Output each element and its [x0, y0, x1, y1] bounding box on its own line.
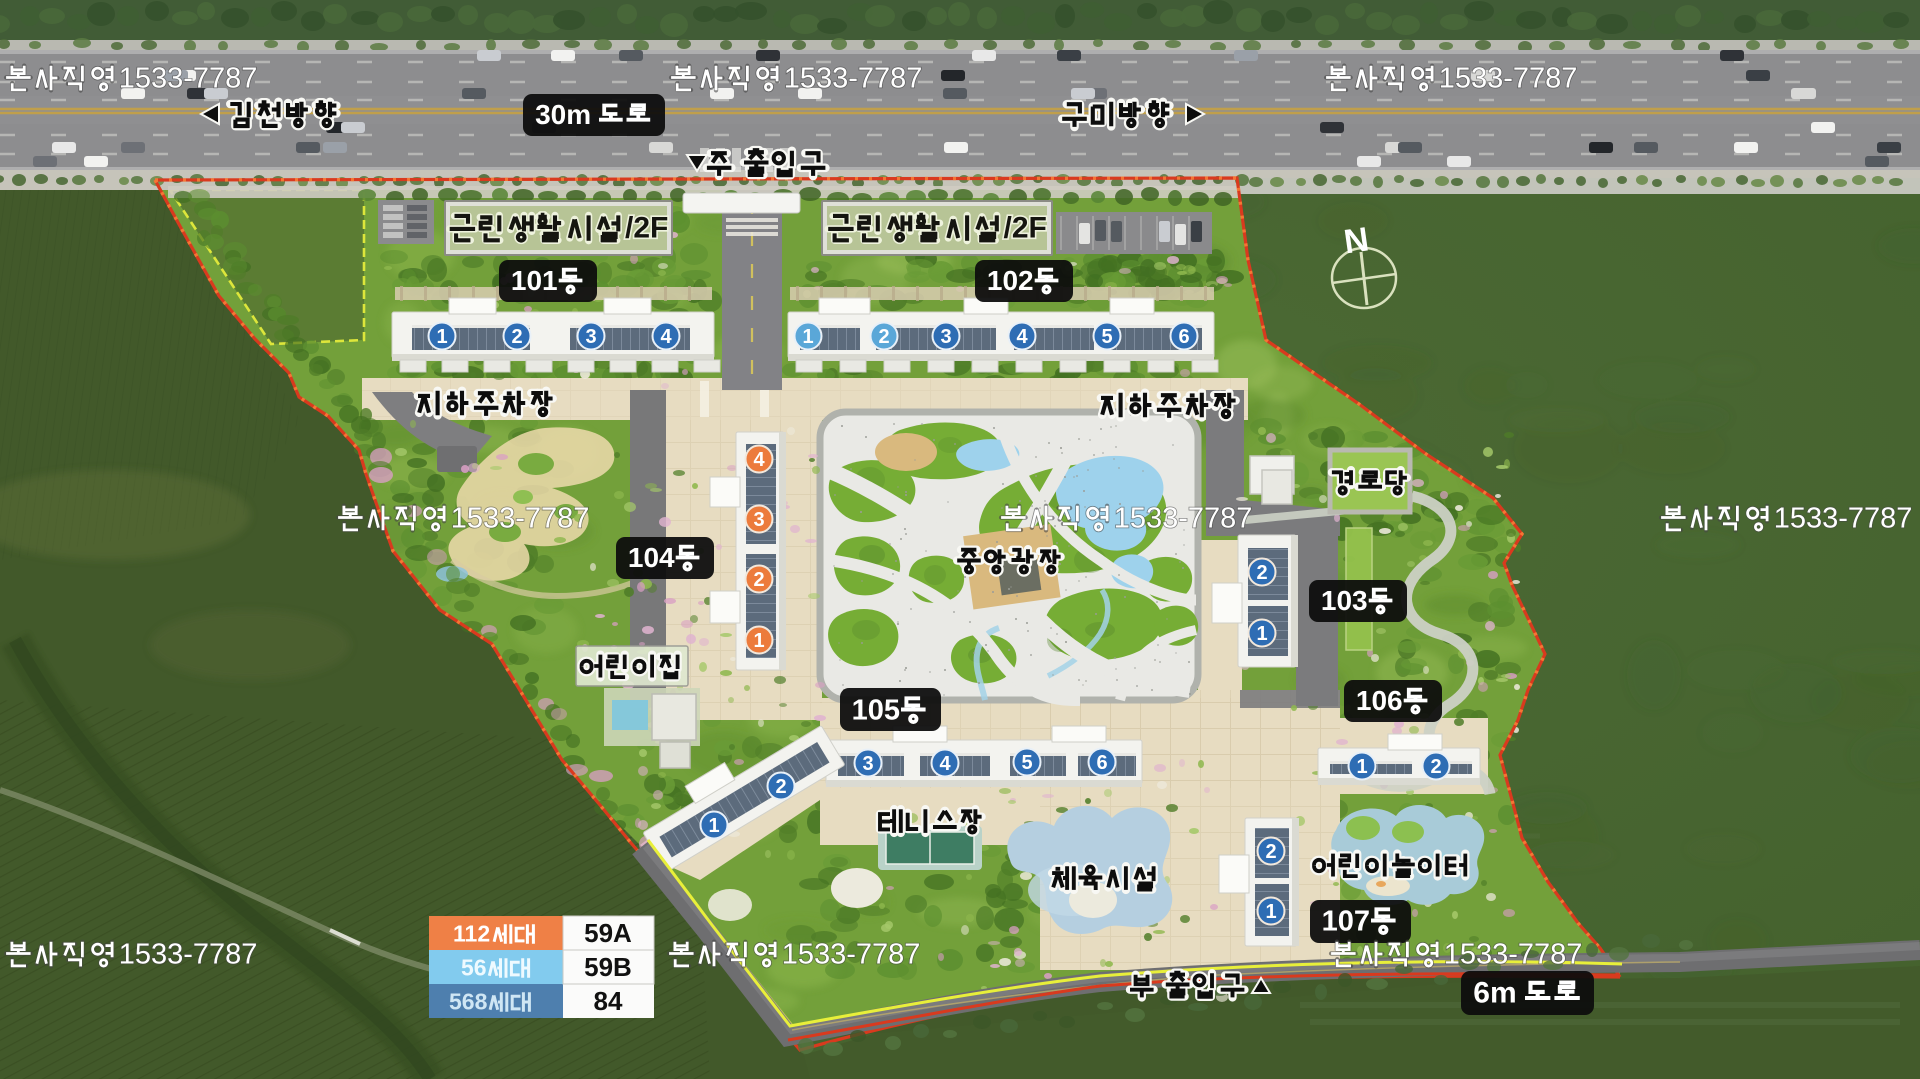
svg-text:5: 5	[1021, 752, 1032, 774]
svg-text:84: 84	[594, 986, 623, 1016]
svg-text:1: 1	[1356, 756, 1367, 778]
svg-text:2: 2	[878, 326, 889, 348]
svg-text:56: 56	[461, 954, 487, 980]
svg-text:105: 105	[852, 694, 900, 726]
svg-text:2: 2	[1430, 756, 1441, 778]
svg-text:1: 1	[436, 326, 447, 348]
svg-text:4: 4	[1016, 326, 1028, 348]
svg-text:568: 568	[449, 988, 488, 1014]
svg-text:1533-7787: 1533-7787	[782, 938, 921, 970]
svg-text:1: 1	[802, 326, 813, 348]
svg-text:106: 106	[1356, 685, 1403, 716]
svg-text:/2F: /2F	[1004, 212, 1047, 245]
svg-text:1533-7787: 1533-7787	[1439, 62, 1578, 94]
svg-text:3: 3	[585, 326, 596, 348]
svg-text:5: 5	[1101, 326, 1112, 348]
svg-text:3: 3	[753, 509, 764, 531]
svg-text:2: 2	[753, 569, 764, 591]
svg-text:30m: 30m	[535, 99, 591, 130]
svg-text:3: 3	[940, 326, 951, 348]
svg-text:104: 104	[628, 542, 675, 573]
svg-text:2: 2	[1265, 841, 1276, 863]
svg-text:1: 1	[1265, 901, 1276, 923]
svg-text:1: 1	[1256, 623, 1267, 645]
svg-text:59B: 59B	[584, 952, 632, 982]
svg-text:1: 1	[753, 630, 764, 652]
svg-text:/2F: /2F	[625, 212, 668, 245]
svg-text:6: 6	[1096, 752, 1107, 774]
svg-text:1533-7787: 1533-7787	[1444, 938, 1583, 970]
svg-text:107: 107	[1322, 905, 1370, 937]
svg-text:101: 101	[511, 265, 558, 296]
svg-text:102: 102	[987, 265, 1034, 296]
svg-text:2: 2	[1256, 562, 1267, 584]
svg-text:N: N	[1342, 220, 1372, 261]
svg-text:1533-7787: 1533-7787	[784, 62, 923, 94]
svg-text:1533-7787: 1533-7787	[451, 502, 590, 534]
svg-text:6m: 6m	[1473, 977, 1516, 1010]
svg-text:3: 3	[862, 753, 873, 775]
svg-text:1533-7787: 1533-7787	[119, 938, 258, 970]
svg-text:4: 4	[660, 326, 672, 348]
svg-text:1: 1	[708, 815, 719, 837]
svg-text:2: 2	[511, 326, 522, 348]
svg-text:4: 4	[753, 449, 765, 471]
svg-text:1533-7787: 1533-7787	[1114, 502, 1253, 534]
svg-text:1533-7787: 1533-7787	[119, 62, 258, 94]
svg-text:1533-7787: 1533-7787	[1774, 502, 1913, 534]
svg-text:6: 6	[1178, 326, 1189, 348]
svg-text:4: 4	[939, 753, 951, 775]
svg-text:112: 112	[453, 920, 490, 946]
svg-text:2: 2	[775, 776, 786, 798]
svg-text:103: 103	[1321, 585, 1368, 616]
svg-text:59A: 59A	[584, 918, 632, 948]
